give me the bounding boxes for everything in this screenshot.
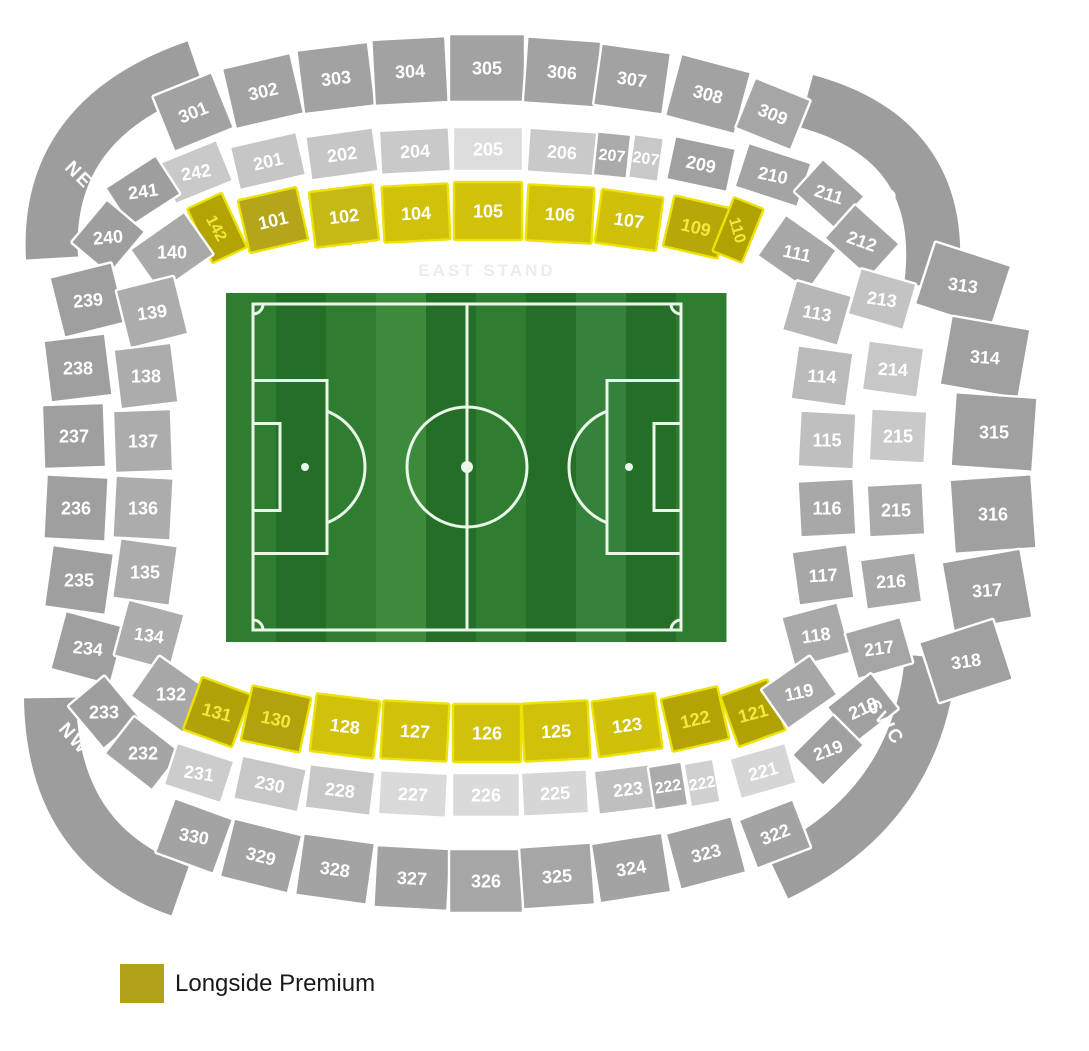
section-222-2[interactable]: 222 [683, 759, 720, 808]
section-328-label: 328 [319, 857, 352, 881]
section-116[interactable]: 116 [798, 479, 857, 538]
section-118[interactable]: 118 [781, 602, 850, 667]
section-114[interactable]: 114 [791, 345, 854, 406]
section-201[interactable]: 201 [230, 132, 306, 190]
pitch-grass-stripe [626, 293, 677, 642]
section-307[interactable]: 307 [593, 43, 671, 114]
section-305[interactable]: 305 [449, 34, 525, 102]
section-222[interactable]: 222 [648, 762, 688, 811]
section-134-label: 134 [133, 623, 166, 647]
section-114-label: 114 [807, 366, 837, 387]
section-232-label: 232 [128, 743, 158, 763]
section-214-label: 214 [877, 359, 908, 381]
section-326[interactable]: 326 [449, 849, 523, 913]
section-136-label: 136 [128, 498, 158, 518]
pitch-grass-stripe [576, 293, 627, 642]
section-137-label: 137 [128, 431, 158, 451]
section-303-label: 303 [320, 67, 352, 91]
section-231[interactable]: 231 [164, 743, 235, 803]
section-138-label: 138 [131, 366, 161, 386]
section-135[interactable]: 135 [112, 538, 178, 605]
section-241-label: 241 [127, 179, 160, 203]
stadium-svg: 3013023033043053063073083092422012022042… [0, 0, 1089, 1051]
section-106[interactable]: 106 [526, 184, 595, 243]
section-117-label: 117 [808, 565, 838, 586]
pitch-grass-stripe [476, 293, 527, 642]
section-313-label: 313 [947, 273, 980, 297]
section-217-label: 217 [863, 636, 896, 660]
section-202[interactable]: 202 [305, 127, 378, 180]
section-107[interactable]: 107 [595, 189, 664, 251]
section-226[interactable]: 226 [452, 773, 520, 817]
section-228[interactable]: 228 [305, 764, 376, 816]
section-130[interactable]: 130 [241, 685, 311, 752]
section-127-label: 127 [399, 721, 430, 743]
section-315[interactable]: 315 [951, 392, 1038, 472]
section-327[interactable]: 327 [373, 845, 450, 911]
section-115[interactable]: 115 [798, 411, 857, 470]
section-304-label: 304 [394, 61, 425, 83]
section-315-label: 315 [979, 422, 1009, 442]
section-226-label: 226 [471, 785, 501, 805]
section-302[interactable]: 302 [222, 53, 304, 129]
section-221[interactable]: 221 [729, 743, 796, 799]
section-306[interactable]: 306 [523, 36, 601, 107]
section-329[interactable]: 329 [220, 818, 302, 893]
section-234-label: 234 [72, 637, 104, 660]
section-127[interactable]: 127 [381, 700, 450, 761]
legend-label: Longside Premium [175, 970, 375, 998]
pitch-center-spot [461, 461, 473, 473]
section-238[interactable]: 238 [43, 333, 112, 402]
section-236[interactable]: 236 [43, 474, 108, 541]
section-216-label: 216 [875, 571, 906, 593]
section-317[interactable]: 317 [942, 549, 1033, 632]
section-238-label: 238 [63, 358, 93, 378]
section-316-label: 316 [978, 504, 1008, 524]
section-325-label: 325 [541, 865, 572, 887]
section-314[interactable]: 314 [940, 316, 1031, 399]
section-104[interactable]: 104 [382, 183, 451, 242]
pitch-grass-stripe [676, 293, 727, 642]
section-101[interactable]: 101 [238, 187, 309, 253]
section-235-label: 235 [64, 570, 94, 590]
section-237[interactable]: 237 [42, 403, 106, 469]
section-223-label: 223 [612, 778, 644, 802]
section-239[interactable]: 239 [49, 262, 126, 338]
section-116-label: 116 [812, 498, 841, 518]
section-135-label: 135 [130, 562, 160, 582]
section-204[interactable]: 204 [379, 127, 451, 175]
section-303[interactable]: 303 [296, 42, 375, 114]
section-228-label: 228 [324, 779, 356, 803]
section-231-label: 231 [183, 761, 216, 785]
section-202-label: 202 [326, 142, 359, 166]
section-113[interactable]: 113 [782, 280, 852, 346]
section-125-label: 125 [540, 721, 571, 743]
section-140-label: 140 [157, 242, 187, 262]
section-126[interactable]: 126 [453, 704, 521, 762]
section-227-label: 227 [397, 784, 428, 806]
section-107-label: 107 [613, 208, 646, 232]
section-207[interactable]: 207 [593, 131, 631, 178]
section-209[interactable]: 209 [666, 136, 736, 192]
section-102-label: 102 [328, 205, 360, 229]
section-215-2-label: 215 [881, 500, 911, 520]
section-105-label: 105 [473, 201, 503, 221]
section-307-label: 307 [616, 67, 649, 91]
pitch-penalty-spot-right [625, 463, 633, 471]
section-105[interactable]: 105 [454, 182, 522, 240]
section-213-label: 213 [866, 287, 899, 311]
pitch-grass-stripe [226, 293, 277, 642]
section-206-label: 206 [546, 141, 577, 163]
section-230[interactable]: 230 [233, 756, 307, 813]
section-204-label: 204 [399, 141, 430, 163]
section-217[interactable]: 217 [845, 617, 914, 679]
stadium-seating-map: 3013023033043053063073083092422012022042… [0, 0, 1089, 1051]
section-128-label: 128 [329, 715, 361, 739]
section-314-label: 314 [969, 346, 1000, 368]
section-206[interactable]: 206 [527, 128, 598, 177]
section-304[interactable]: 304 [371, 36, 448, 106]
section-237-label: 237 [59, 426, 89, 446]
stand-label-east: EAST STAND [418, 261, 555, 280]
section-205[interactable]: 205 [453, 127, 523, 171]
section-233-label: 233 [89, 702, 119, 722]
section-216[interactable]: 216 [860, 552, 922, 609]
section-316[interactable]: 316 [950, 474, 1037, 554]
section-326-label: 326 [471, 871, 501, 891]
section-118-label: 118 [800, 624, 832, 648]
section-323[interactable]: 323 [666, 816, 747, 890]
section-318-label: 318 [950, 649, 983, 673]
section-214[interactable]: 214 [862, 340, 924, 397]
section-317-label: 317 [971, 579, 1002, 601]
section-207-label: 207 [598, 146, 626, 166]
section-122[interactable]: 122 [661, 686, 730, 752]
section-239-label: 239 [72, 289, 104, 312]
section-136[interactable]: 136 [112, 476, 173, 541]
section-128[interactable]: 128 [310, 693, 381, 758]
pitch-grass-stripe [376, 293, 427, 642]
section-117[interactable]: 117 [792, 544, 855, 605]
section-106-label: 106 [544, 204, 575, 226]
section-215[interactable]: 215 [869, 409, 928, 464]
section-115-label: 115 [812, 430, 841, 450]
legend-swatch-longside-premium [120, 964, 164, 1003]
section-305-label: 305 [472, 58, 502, 78]
legend: Longside Premium [120, 964, 375, 1003]
section-327-label: 327 [396, 868, 427, 890]
section-104-label: 104 [400, 203, 431, 225]
section-123[interactable]: 123 [591, 693, 662, 757]
section-139[interactable]: 139 [116, 276, 189, 349]
section-236-label: 236 [61, 498, 91, 518]
section-240-label: 240 [92, 226, 124, 249]
section-134[interactable]: 134 [113, 599, 184, 670]
section-125[interactable]: 125 [522, 700, 591, 761]
section-215-label: 215 [883, 426, 913, 446]
section-235[interactable]: 235 [44, 545, 114, 615]
section-215-2[interactable]: 215 [867, 483, 926, 538]
section-227[interactable]: 227 [378, 770, 448, 817]
section-126-label: 126 [472, 723, 502, 743]
section-132-label: 132 [156, 684, 186, 704]
section-324[interactable]: 324 [591, 833, 671, 904]
section-123-label: 123 [611, 713, 644, 737]
section-225-label: 225 [539, 783, 570, 805]
section-225[interactable]: 225 [521, 769, 589, 816]
section-306-label: 306 [546, 61, 577, 83]
section-137[interactable]: 137 [113, 409, 173, 473]
section-328[interactable]: 328 [295, 833, 375, 904]
pitch [226, 293, 727, 642]
section-139-label: 139 [136, 300, 169, 324]
section-102[interactable]: 102 [309, 184, 379, 247]
section-207-2[interactable]: 207 [628, 134, 664, 182]
section-205-label: 205 [473, 139, 503, 159]
section-138[interactable]: 138 [114, 343, 179, 410]
section-325[interactable]: 325 [519, 843, 595, 910]
pitch-grass-stripe [326, 293, 377, 642]
pitch-penalty-spot-left [301, 463, 309, 471]
